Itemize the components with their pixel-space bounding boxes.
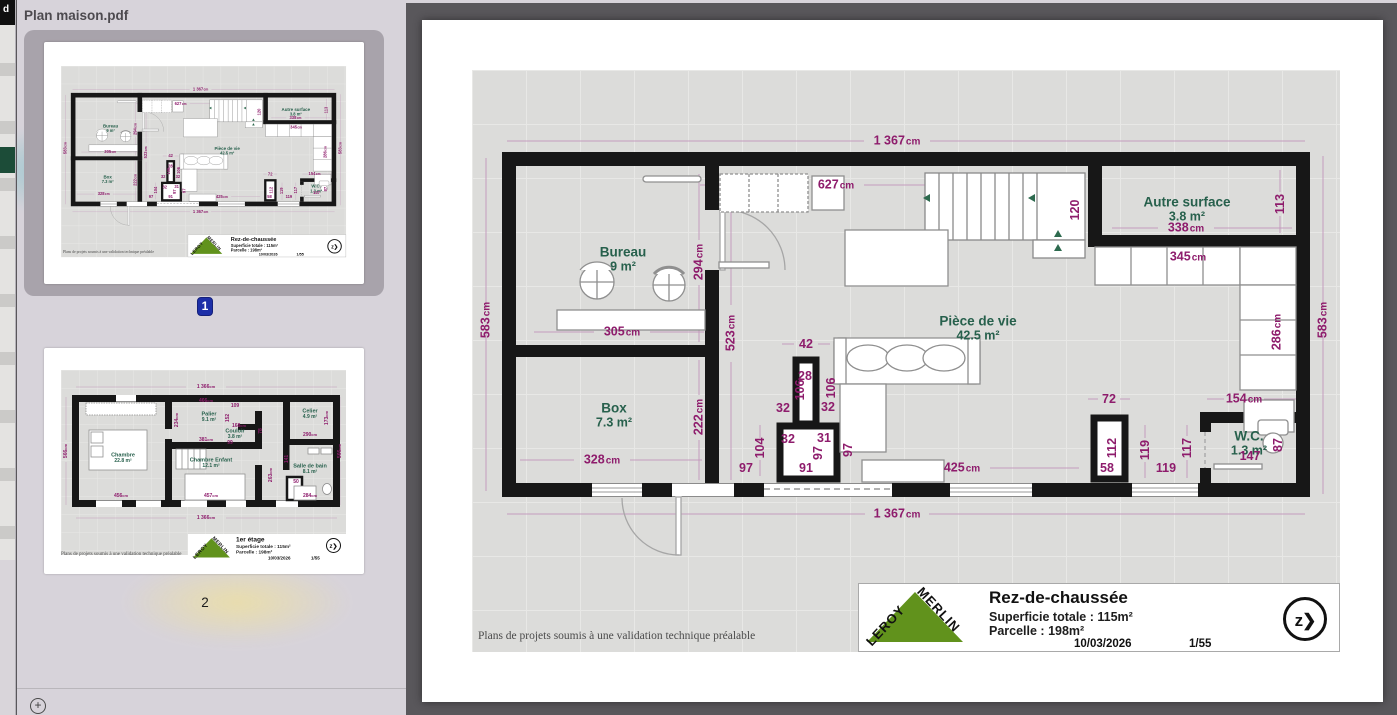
plan1-parcelle: Parcelle : 198m² (989, 624, 1084, 638)
stairs (925, 173, 1085, 258)
plan1-parcelle: Parcelle : 198m² (231, 248, 262, 253)
zoom-thumbnails-button[interactable]: + (30, 698, 46, 714)
floorplan1-drawing (472, 70, 1340, 652)
edge-row (0, 526, 16, 539)
compass-icon: z❯ (326, 538, 341, 553)
plan1-page-ref: 1/55 (1189, 638, 1211, 650)
plan1-date: 10/03/2026 (1074, 638, 1132, 650)
floorplan2-drawing (61, 370, 346, 555)
stairs (210, 100, 263, 128)
plan1-title: Rez-de-chaussée (989, 588, 1128, 608)
edge-row (0, 352, 16, 365)
edge-row (0, 294, 16, 307)
edge-row (0, 121, 16, 134)
thumbnail-page-1-preview: Bureau9 m²Box7.3 m²Pièce de vie42.5 m²Au… (61, 66, 346, 257)
sofa (834, 338, 980, 452)
edge-bottom-band (0, 560, 16, 715)
disclaimer-page1: Plans de projets soumis à une validation… (478, 630, 755, 642)
edge-row (0, 468, 16, 481)
page-1-badge: 1 (197, 297, 213, 316)
plan1-title: Rez-de-chaussée (231, 236, 277, 243)
desktop-screenshot: d Plan maison.pdf (0, 0, 1397, 715)
titleblock-page1: LEROY MERLIN Rez-de-chaussée Superficie … (188, 234, 346, 257)
plan1-date: 10/03/2026 (259, 253, 278, 257)
disclaimer-page1: Plans de projets soumis à une validation… (63, 250, 154, 254)
pdf-page-1: Bureau9 m²Box7.3 m²Pièce de vie42.5 m²Au… (422, 20, 1383, 702)
edge-row (0, 63, 16, 76)
plan1-page-ref: 1/55 (296, 253, 303, 257)
titleblock-page1: LEROY MERLIN Rez-de-chaussée Superficie … (858, 583, 1340, 652)
plan1-superficie: Superficie totale : 115m² (989, 610, 1133, 624)
thumbnail-page-2-preview: Chambre22.8 m²Palier9.1 m²Couloir3.8 m²C… (61, 370, 346, 555)
thumbnail-page-2[interactable]: Chambre22.8 m²Palier9.1 m²Couloir3.8 m²C… (44, 348, 364, 574)
sidebar-separator (17, 688, 406, 689)
edge-row (0, 410, 16, 423)
floorplan1-drawing (61, 66, 346, 257)
document-title: Plan maison.pdf (24, 8, 128, 23)
compass-icon: z❯ (1283, 597, 1327, 641)
leroy-merlin-logo: LEROY MERLIN (859, 584, 971, 648)
thumbnail-page-1[interactable]: Bureau9 m²Box7.3 m²Pièce de vie42.5 m²Au… (44, 42, 364, 284)
document-viewport[interactable]: Bureau9 m²Box7.3 m²Pièce de vie42.5 m²Au… (406, 0, 1397, 715)
edge-row (0, 236, 16, 249)
floorplan-page2: Chambre22.8 m²Palier9.1 m²Couloir3.8 m²C… (61, 370, 346, 555)
floorplan-page1: Bureau9 m²Box7.3 m²Pièce de vie42.5 m²Au… (61, 66, 346, 257)
leroy-merlin-logo: LEROY MERLIN (188, 235, 225, 256)
edge-green-band (0, 147, 16, 173)
edge-logo-fragment: d (0, 0, 16, 25)
floorplan-page1: Bureau9 m²Box7.3 m²Pièce de vie42.5 m²Au… (472, 70, 1340, 652)
background-window-sliver: d (0, 0, 16, 715)
plan2-title: 1er étage (236, 536, 265, 544)
sofa (180, 154, 228, 191)
disclaimer-page2: Plans de projets soumis à une validation… (61, 551, 321, 563)
viewport-top-edge (406, 0, 1397, 3)
thumbnail-sidebar: Plan maison.pdf (17, 0, 406, 715)
edge-row (0, 178, 16, 191)
compass-icon: z❯ (327, 239, 341, 253)
page-2-label: 2 (196, 595, 214, 610)
